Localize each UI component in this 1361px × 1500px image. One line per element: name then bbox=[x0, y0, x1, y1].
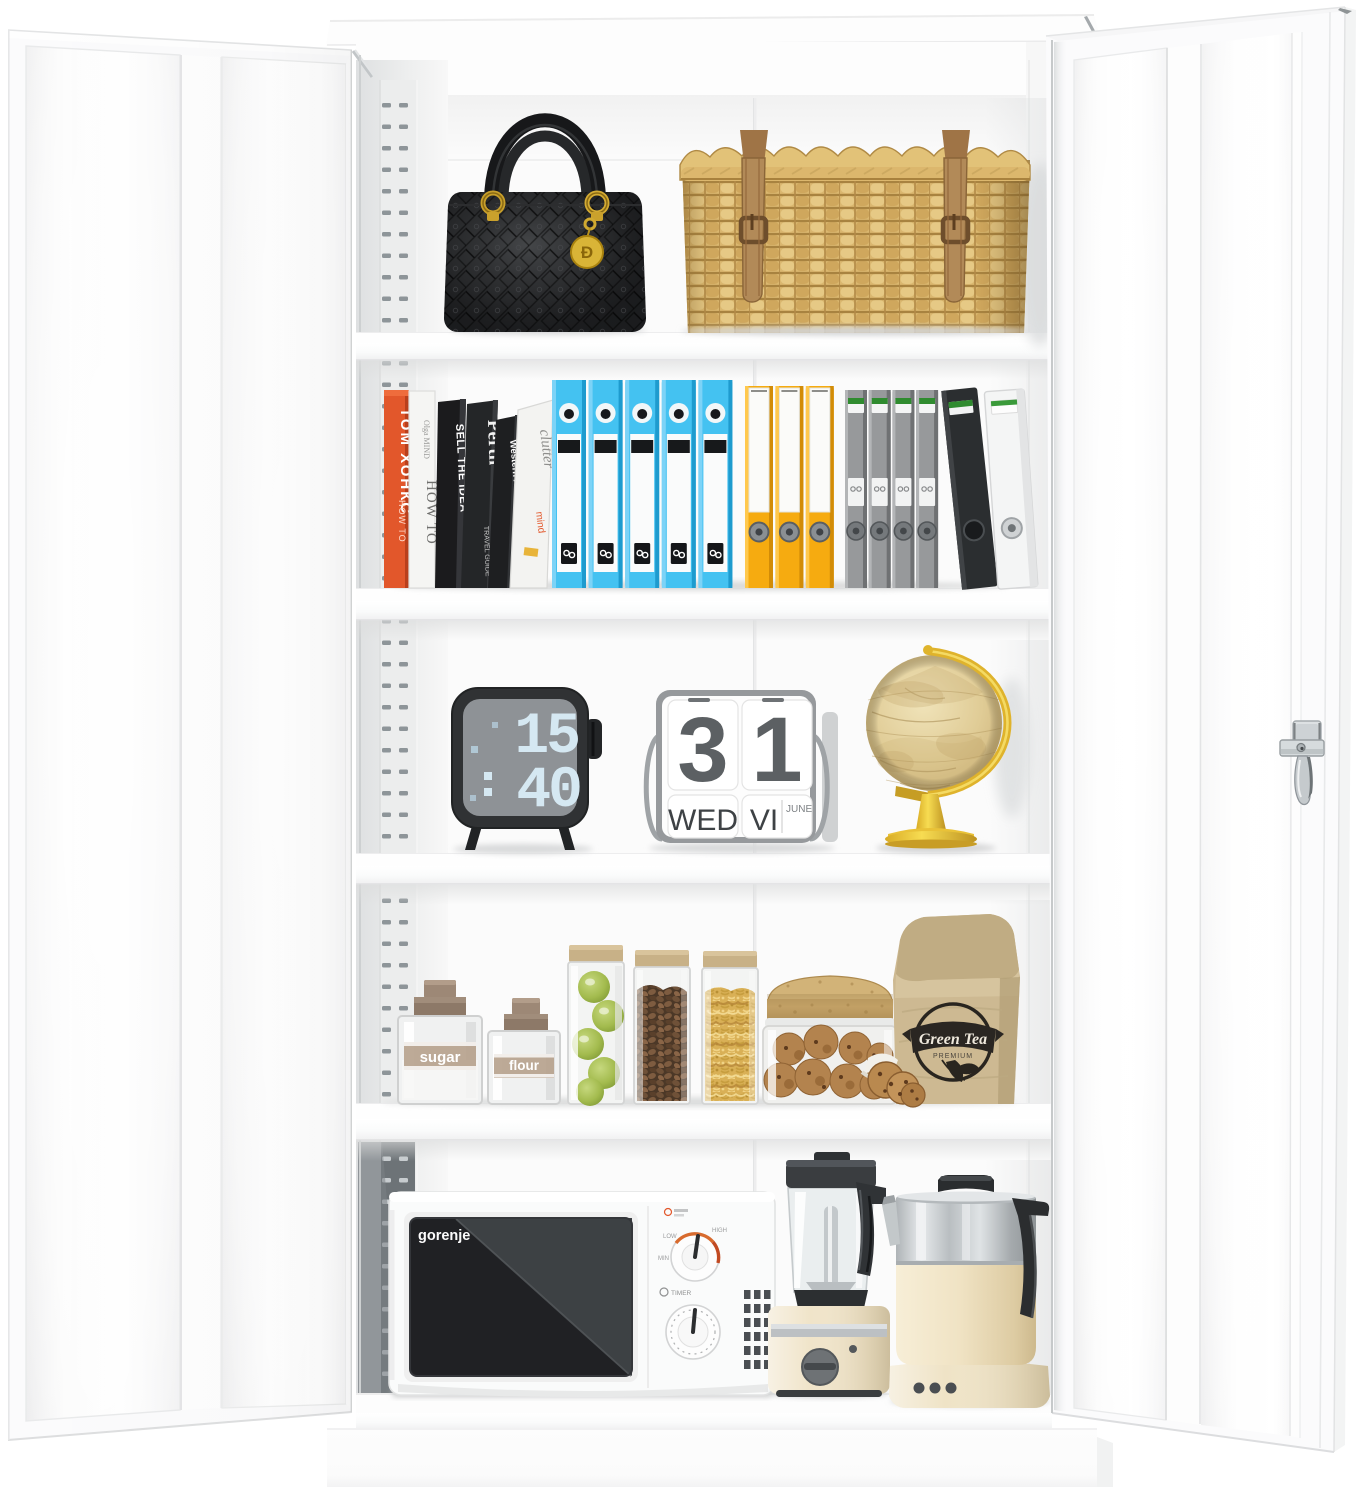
svg-text:Olga MIND: Olga MIND bbox=[422, 420, 431, 459]
svg-text:TIMER: TIMER bbox=[671, 1290, 692, 1297]
svg-text:40: 40 bbox=[516, 759, 580, 824]
svg-text:3: 3 bbox=[677, 699, 728, 801]
svg-text:WED: WED bbox=[668, 804, 738, 837]
svg-text:VI: VI bbox=[750, 804, 778, 837]
svg-text:HOW TO: HOW TO bbox=[397, 500, 407, 543]
svg-text:PREMIUM: PREMIUM bbox=[933, 1053, 973, 1060]
svg-text:HIGH: HIGH bbox=[712, 1228, 727, 1234]
svg-text:Green Tea: Green Tea bbox=[919, 1031, 987, 1048]
svg-text:Ð: Ð bbox=[581, 243, 593, 262]
svg-text:sugar: sugar bbox=[420, 1049, 461, 1066]
svg-text:JUNE: JUNE bbox=[786, 804, 812, 815]
svg-text:flour: flour bbox=[509, 1058, 540, 1073]
svg-text:LOW: LOW bbox=[663, 1234, 677, 1240]
svg-text:gorenje: gorenje bbox=[418, 1228, 470, 1244]
svg-text:1: 1 bbox=[751, 699, 802, 801]
svg-text:MIN: MIN bbox=[658, 1256, 669, 1262]
